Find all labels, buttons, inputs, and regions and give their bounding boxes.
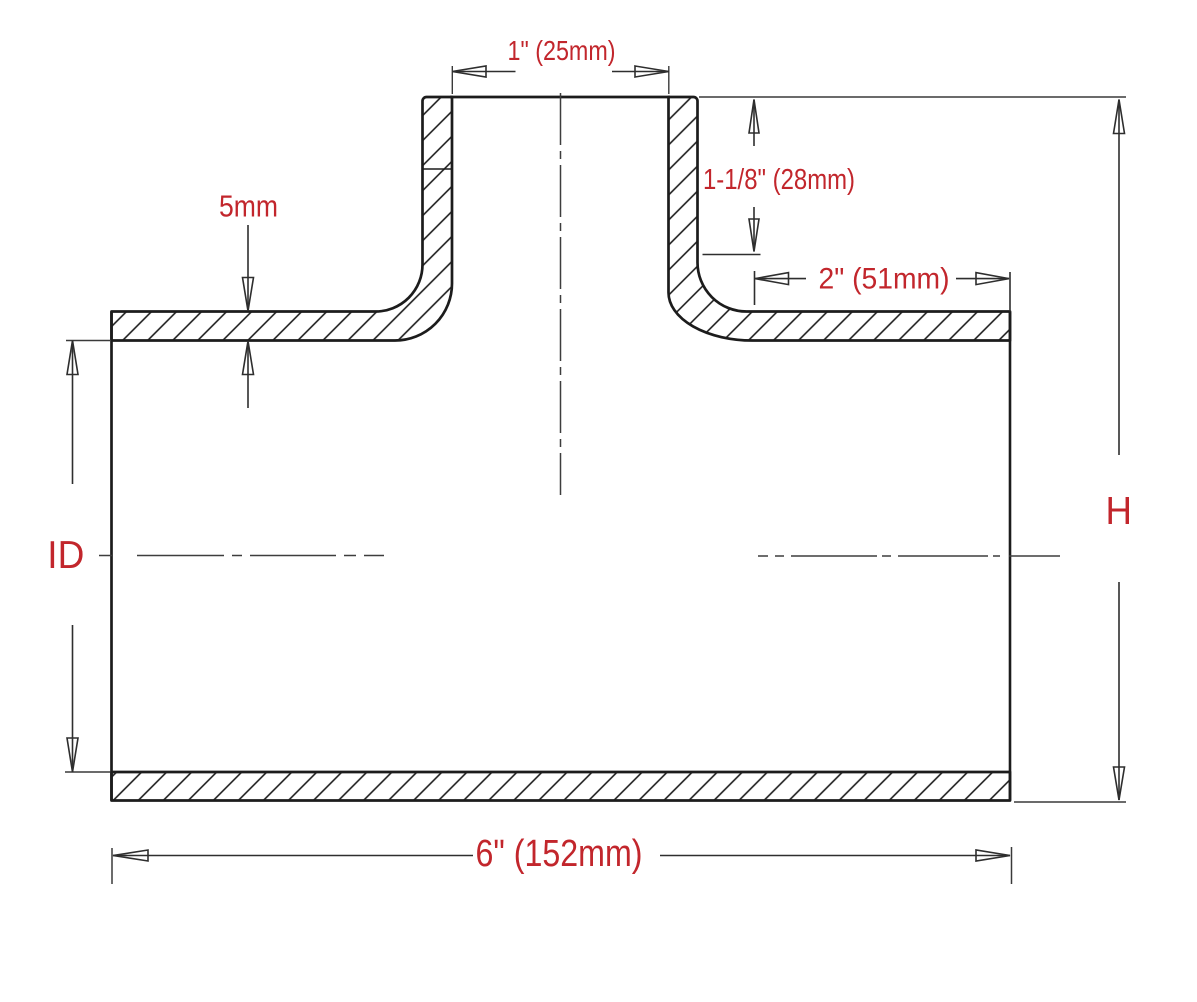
svg-text:1-1/8" (28mm): 1-1/8" (28mm) <box>703 164 855 196</box>
svg-text:6" (152mm): 6" (152mm) <box>476 833 643 875</box>
svg-text:ID: ID <box>47 534 84 577</box>
svg-text:2" (51mm): 2" (51mm) <box>819 263 950 296</box>
svg-text:H: H <box>1106 490 1133 533</box>
svg-text:5mm: 5mm <box>219 189 278 224</box>
svg-text:1" (25mm): 1" (25mm) <box>508 35 616 66</box>
